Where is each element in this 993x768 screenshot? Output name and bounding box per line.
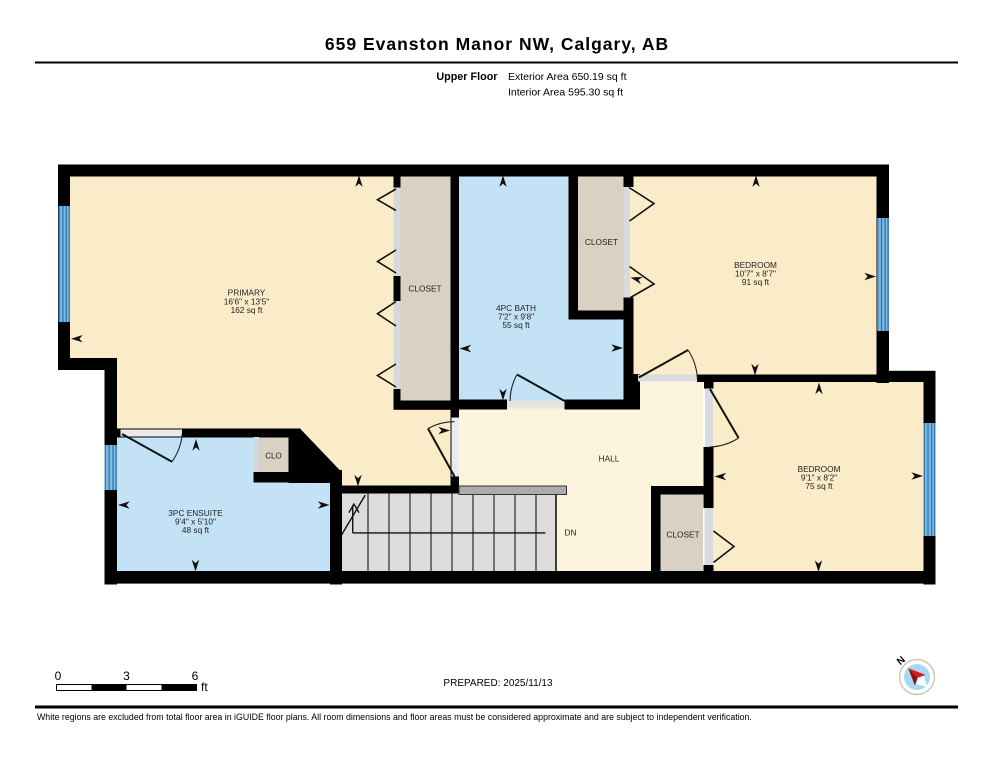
svg-text:ft: ft [201,680,208,694]
svg-text:CLO: CLO [265,452,281,461]
svg-text:White regions are excluded fro: White regions are excluded from total fl… [37,712,752,722]
svg-text:DN: DN [565,528,577,538]
svg-text:CLOSET: CLOSET [585,237,618,247]
svg-text:HALL: HALL [599,454,620,464]
svg-text:CLOSET: CLOSET [666,530,699,540]
svg-text:0: 0 [55,669,62,683]
svg-text:3: 3 [123,669,130,683]
svg-text:162 sq ft: 162 sq ft [231,305,264,315]
svg-text:PREPARED: 2025/11/13: PREPARED: 2025/11/13 [443,678,553,689]
svg-text:Upper Floor: Upper Floor [436,71,498,83]
svg-text:CLOSET: CLOSET [408,284,441,294]
svg-text:Interior Area 595.30 sq ft: Interior Area 595.30 sq ft [508,87,623,99]
svg-text:659 Evanston Manor NW, Calgary: 659 Evanston Manor NW, Calgary, AB [325,34,669,54]
svg-text:55 sq ft: 55 sq ft [502,320,530,330]
svg-text:Exterior Area 650.19 sq ft: Exterior Area 650.19 sq ft [508,71,627,83]
svg-text:48 sq ft: 48 sq ft [182,525,210,535]
svg-text:91 sq ft: 91 sq ft [742,277,770,287]
svg-text:75 sq ft: 75 sq ft [805,481,833,491]
svg-text:6: 6 [192,669,199,683]
